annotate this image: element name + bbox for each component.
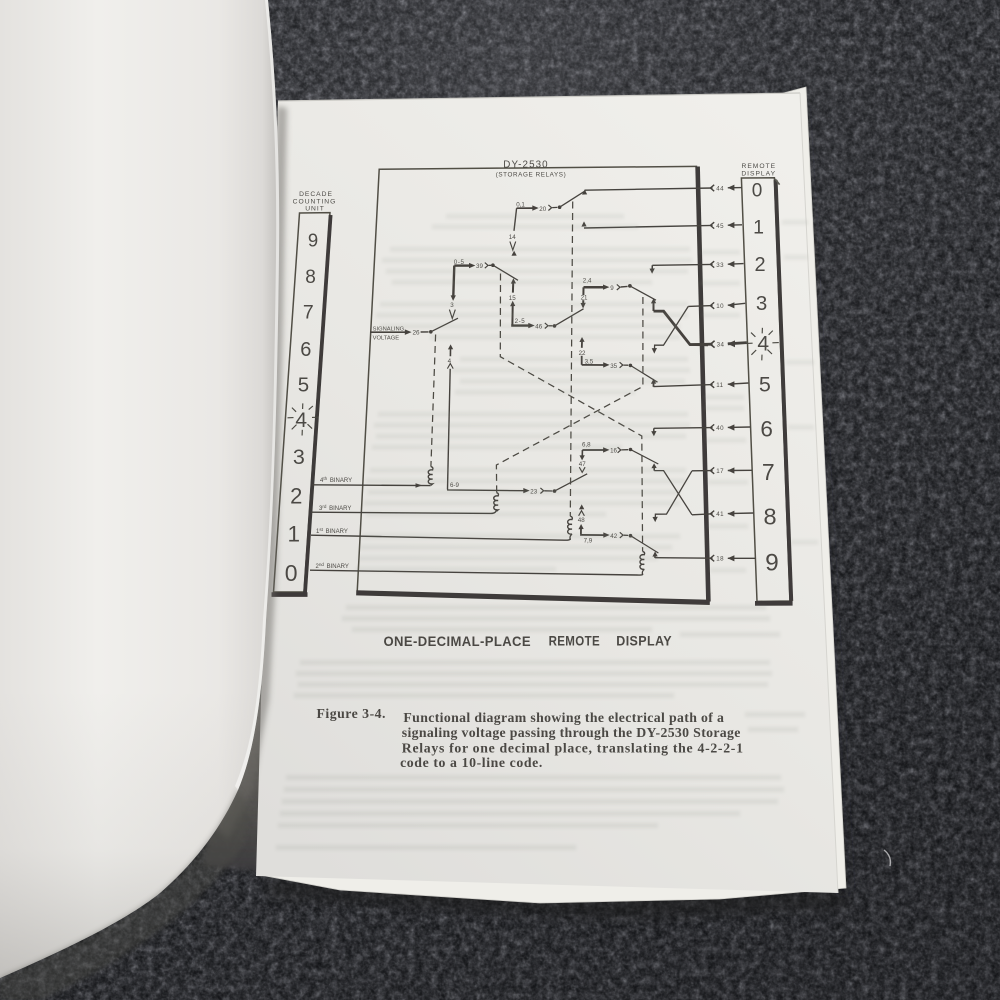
- svg-text:5: 5: [298, 374, 309, 397]
- svg-text:ONE-DECIMAL-PLACE: ONE-DECIMAL-PLACE: [384, 634, 532, 649]
- svg-text:47: 47: [579, 461, 586, 468]
- svg-text:34: 34: [717, 342, 725, 349]
- svg-text:7: 7: [303, 302, 314, 324]
- svg-text:10: 10: [716, 303, 724, 310]
- svg-text:9: 9: [610, 285, 614, 292]
- svg-text:DISPLAY: DISPLAY: [616, 633, 672, 648]
- svg-text:2: 2: [755, 254, 766, 276]
- svg-text:8: 8: [305, 267, 316, 288]
- svg-text:41: 41: [716, 511, 724, 518]
- svg-text:2: 2: [290, 484, 302, 509]
- svg-text:5: 5: [759, 372, 771, 396]
- svg-text:0: 0: [752, 181, 763, 202]
- svg-text:REMOTE: REMOTE: [741, 163, 776, 170]
- svg-text:6: 6: [300, 339, 311, 361]
- svg-text:DISPLAY: DISPLAY: [741, 170, 776, 177]
- svg-text:7,9: 7,9: [584, 538, 593, 545]
- svg-text:9: 9: [308, 230, 318, 251]
- svg-text:DY-2530: DY-2530: [503, 160, 548, 171]
- svg-text:14: 14: [509, 234, 516, 241]
- svg-text:UNIT: UNIT: [305, 205, 325, 212]
- svg-text:33: 33: [716, 262, 724, 269]
- svg-text:1: 1: [753, 217, 764, 239]
- svg-text:26: 26: [413, 329, 421, 336]
- svg-text:3: 3: [293, 445, 305, 469]
- svg-text:48: 48: [578, 517, 585, 524]
- svg-text:45: 45: [716, 223, 724, 230]
- svg-text:Figure 3-4.: Figure 3-4.: [317, 706, 386, 721]
- svg-text:Relays for one decimal place,: Relays for one decimal place, translatin…: [402, 740, 743, 755]
- svg-text:4: 4: [295, 409, 307, 432]
- svg-text:DECADE: DECADE: [299, 191, 333, 198]
- svg-text:REMOTE: REMOTE: [549, 634, 600, 649]
- svg-text:44: 44: [716, 185, 724, 192]
- svg-text:18: 18: [716, 556, 724, 563]
- svg-text:Functional diagram showing the: Functional diagram showing the electrica…: [403, 710, 724, 725]
- svg-text:15: 15: [509, 295, 516, 302]
- svg-text:20: 20: [539, 206, 546, 213]
- svg-text:6: 6: [760, 417, 773, 442]
- svg-text:COUNTING: COUNTING: [293, 198, 337, 205]
- svg-text:9: 9: [765, 550, 779, 577]
- svg-text:(STORAGE RELAYS): (STORAGE RELAYS): [496, 172, 567, 179]
- svg-text:17: 17: [716, 468, 724, 475]
- svg-text:4: 4: [757, 333, 769, 356]
- svg-text:40: 40: [716, 425, 724, 432]
- svg-text:0: 0: [285, 560, 298, 586]
- svg-text:3: 3: [756, 292, 767, 315]
- svg-text:signaling voltage passing thro: signaling voltage passing through the DY…: [402, 725, 741, 740]
- svg-text:1: 1: [287, 522, 300, 547]
- svg-text:11: 11: [716, 382, 723, 389]
- svg-text:8: 8: [764, 504, 777, 530]
- svg-text:7: 7: [762, 459, 775, 485]
- svg-text:21: 21: [581, 294, 588, 301]
- svg-text:code to a 10-line code.: code to a 10-line code.: [400, 755, 542, 770]
- svg-text:22: 22: [579, 350, 586, 357]
- svg-text:VOLTAGE: VOLTAGE: [373, 336, 400, 342]
